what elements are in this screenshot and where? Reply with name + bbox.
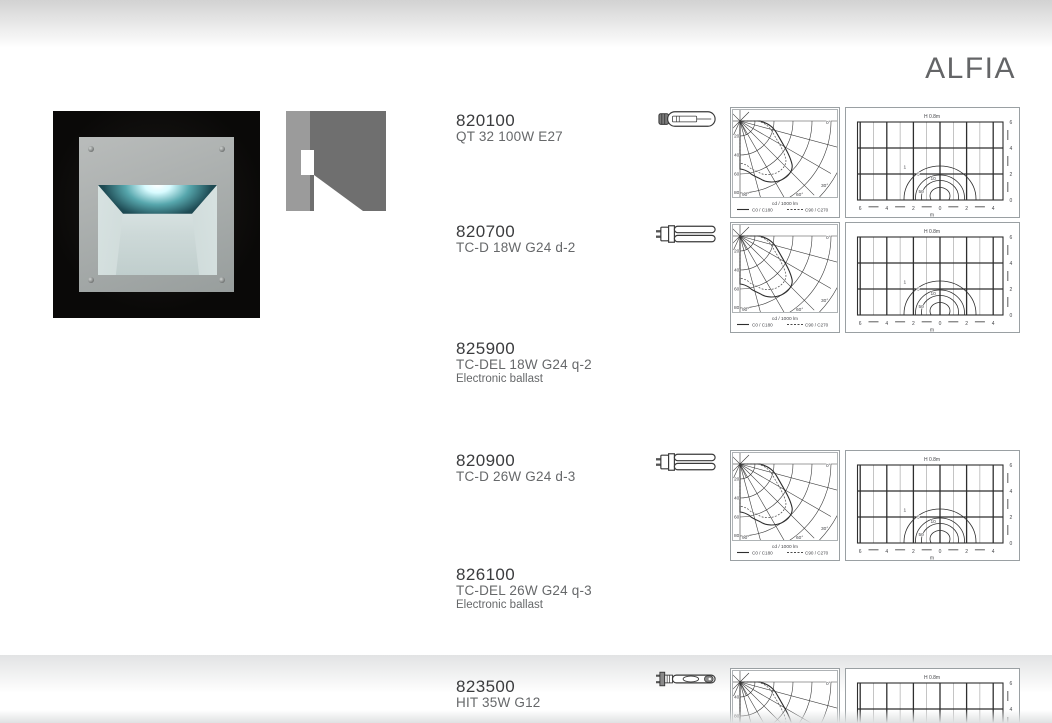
svg-text:2: 2 [965, 549, 968, 555]
screw-icon [88, 146, 94, 152]
svg-text:C0 / C180: C0 / C180 [752, 550, 773, 555]
svg-text:2: 2 [1010, 287, 1013, 293]
svg-text:6: 6 [859, 549, 862, 555]
svg-text:H 0.8m: H 0.8m [924, 114, 940, 120]
svg-text:80: 80 [734, 714, 740, 720]
svg-text:6: 6 [1010, 120, 1013, 126]
fixture-faceplate [79, 137, 234, 292]
isolux-diagram: H 0.8m 6 4 2 0 2 4 6 4 2 0 m 1 5 10 50 [845, 222, 1020, 333]
svg-text:1: 1 [904, 280, 907, 286]
svg-text:2: 2 [965, 206, 968, 212]
svg-text:0: 0 [1010, 313, 1013, 319]
svg-text:80: 80 [734, 190, 740, 196]
product-photo [53, 111, 260, 318]
halogen-lamp-icon [656, 106, 718, 132]
page-title: ALFIA [716, 52, 1016, 86]
svg-text:2: 2 [912, 321, 915, 327]
svg-text:80: 80 [734, 533, 740, 539]
svg-text:1: 1 [904, 165, 907, 171]
tc-d-lamp-icon [656, 449, 718, 475]
svg-text:0: 0 [1010, 541, 1013, 547]
svg-text:60: 60 [734, 515, 740, 521]
product-lamp: TC-D 26W G24 d-3 [456, 469, 575, 484]
svg-text:C90 / C270: C90 / C270 [805, 207, 829, 212]
svg-text:4: 4 [992, 206, 995, 212]
svg-text:C0 / C180: C0 / C180 [752, 207, 773, 212]
svg-text:10: 10 [931, 519, 937, 525]
svg-text:cd / 1000 lm: cd / 1000 lm [772, 201, 798, 207]
svg-text:90°: 90° [742, 307, 749, 313]
polar-intensity-diagram: 40 80 0° 30° 60° 90° cd / 1000 lm C0 / C… [730, 668, 840, 723]
svg-text:m: m [930, 328, 934, 334]
tc-d-lamp-icon [656, 221, 718, 247]
product-code: 826100 [456, 565, 515, 585]
product-code: 820900 [456, 451, 515, 471]
svg-text:cd / 1000 lm: cd / 1000 lm [772, 316, 798, 322]
polar-intensity-diagram: 20 40 60 80 0° 30° 60° 90° cd / 1000 lm … [730, 222, 840, 333]
svg-text:4: 4 [1010, 707, 1013, 713]
svg-text:2: 2 [965, 321, 968, 327]
product-code: 820100 [456, 111, 515, 131]
svg-text:C90 / C270: C90 / C270 [805, 550, 829, 555]
svg-text:4: 4 [992, 549, 995, 555]
svg-text:0°: 0° [826, 463, 831, 469]
svg-text:30°: 30° [821, 526, 828, 532]
svg-text:60°: 60° [796, 535, 803, 541]
svg-text:6: 6 [1010, 681, 1013, 687]
svg-text:2: 2 [912, 206, 915, 212]
svg-text:50: 50 [919, 304, 925, 310]
svg-text:50: 50 [919, 189, 925, 195]
svg-text:H 0.8m: H 0.8m [924, 229, 940, 235]
svg-text:60°: 60° [796, 307, 803, 313]
product-code: 823500 [456, 677, 515, 697]
isolux-diagram: H 0.8m 6 4 2 0 2 4 6 4 2 0 m 1 5 10 50 [845, 668, 1020, 723]
product-note: Electronic ballast [456, 373, 543, 385]
recessed-fixture-marker [301, 150, 314, 175]
svg-text:40: 40 [734, 268, 740, 274]
svg-text:1: 1 [904, 508, 907, 514]
product-lamp: TC-DEL 18W G24 q-2 [456, 357, 592, 372]
product-note: Electronic ballast [456, 599, 543, 611]
svg-text:m: m [930, 556, 934, 562]
svg-text:6: 6 [1010, 235, 1013, 241]
svg-text:6: 6 [859, 206, 862, 212]
svg-text:4: 4 [1010, 146, 1013, 152]
polar-intensity-diagram: 20 40 60 80 0° 30° 60° 90° cd / 1000 lm … [730, 107, 840, 218]
svg-text:40: 40 [734, 153, 740, 159]
svg-text:cd / 1000 lm: cd / 1000 lm [772, 544, 798, 550]
svg-text:5: 5 [917, 515, 920, 521]
svg-text:30°: 30° [821, 298, 828, 304]
svg-text:90°: 90° [742, 192, 749, 198]
svg-text:C90 / C270: C90 / C270 [805, 322, 829, 327]
svg-text:4: 4 [885, 549, 888, 555]
svg-text:90°: 90° [742, 535, 749, 541]
svg-text:6: 6 [859, 321, 862, 327]
product-lamp: QT 32 100W E27 [456, 129, 563, 144]
svg-text:60: 60 [734, 287, 740, 293]
svg-text:20: 20 [734, 477, 740, 483]
svg-text:60: 60 [734, 172, 740, 178]
catalog-page: ALFIA [0, 0, 1052, 723]
fixture-light-recess [98, 185, 217, 275]
svg-text:0°: 0° [826, 235, 831, 241]
svg-text:2: 2 [912, 549, 915, 555]
svg-text:5: 5 [917, 287, 920, 293]
installation-diagram [286, 111, 386, 211]
page-top-shadow [0, 0, 1052, 48]
svg-text:10: 10 [931, 176, 937, 182]
svg-text:0°: 0° [826, 120, 831, 126]
product-code: 820700 [456, 222, 515, 242]
svg-text:4: 4 [1010, 489, 1013, 495]
svg-text:80: 80 [734, 305, 740, 311]
svg-text:H 0.8m: H 0.8m [924, 675, 940, 681]
isolux-diagram: H 0.8m 6 4 2 0 2 4 6 4 2 0 m 1 5 10 50 [845, 450, 1020, 561]
svg-text:H 0.8m: H 0.8m [924, 457, 940, 463]
svg-text:2: 2 [1010, 172, 1013, 178]
svg-text:0: 0 [939, 206, 942, 212]
product-lamp: TC-DEL 26W G24 q-3 [456, 583, 592, 598]
product-lamp: TC-D 18W G24 d-2 [456, 240, 575, 255]
svg-text:2: 2 [1010, 515, 1013, 521]
svg-text:40: 40 [734, 695, 740, 701]
svg-text:4: 4 [885, 321, 888, 327]
svg-text:40: 40 [734, 496, 740, 502]
product-code: 825900 [456, 339, 515, 359]
screw-icon [219, 277, 225, 283]
svg-text:6: 6 [1010, 463, 1013, 469]
svg-text:4: 4 [992, 321, 995, 327]
product-lamp: HIT 35W G12 [456, 695, 540, 710]
svg-text:60°: 60° [796, 192, 803, 198]
svg-text:20: 20 [734, 249, 740, 255]
svg-text:5: 5 [917, 172, 920, 178]
svg-text:20: 20 [734, 134, 740, 140]
svg-text:10: 10 [931, 291, 937, 297]
polar-intensity-diagram: 20 40 60 80 0° 30° 60° 90° cd / 1000 lm … [730, 450, 840, 561]
screw-icon [219, 146, 225, 152]
svg-text:m: m [930, 213, 934, 219]
svg-text:4: 4 [1010, 261, 1013, 267]
svg-text:0°: 0° [826, 681, 831, 687]
screw-icon [88, 277, 94, 283]
hit-lamp-icon [656, 666, 718, 692]
svg-text:0: 0 [939, 321, 942, 327]
svg-text:0: 0 [939, 549, 942, 555]
svg-text:0: 0 [1010, 198, 1013, 204]
svg-text:50: 50 [919, 532, 925, 538]
svg-text:C0 / C180: C0 / C180 [752, 322, 773, 327]
svg-text:30°: 30° [821, 183, 828, 189]
svg-text:4: 4 [885, 206, 888, 212]
isolux-diagram: H 0.8m 6 4 2 0 2 4 6 4 2 0 m 1 5 10 50 [845, 107, 1020, 218]
